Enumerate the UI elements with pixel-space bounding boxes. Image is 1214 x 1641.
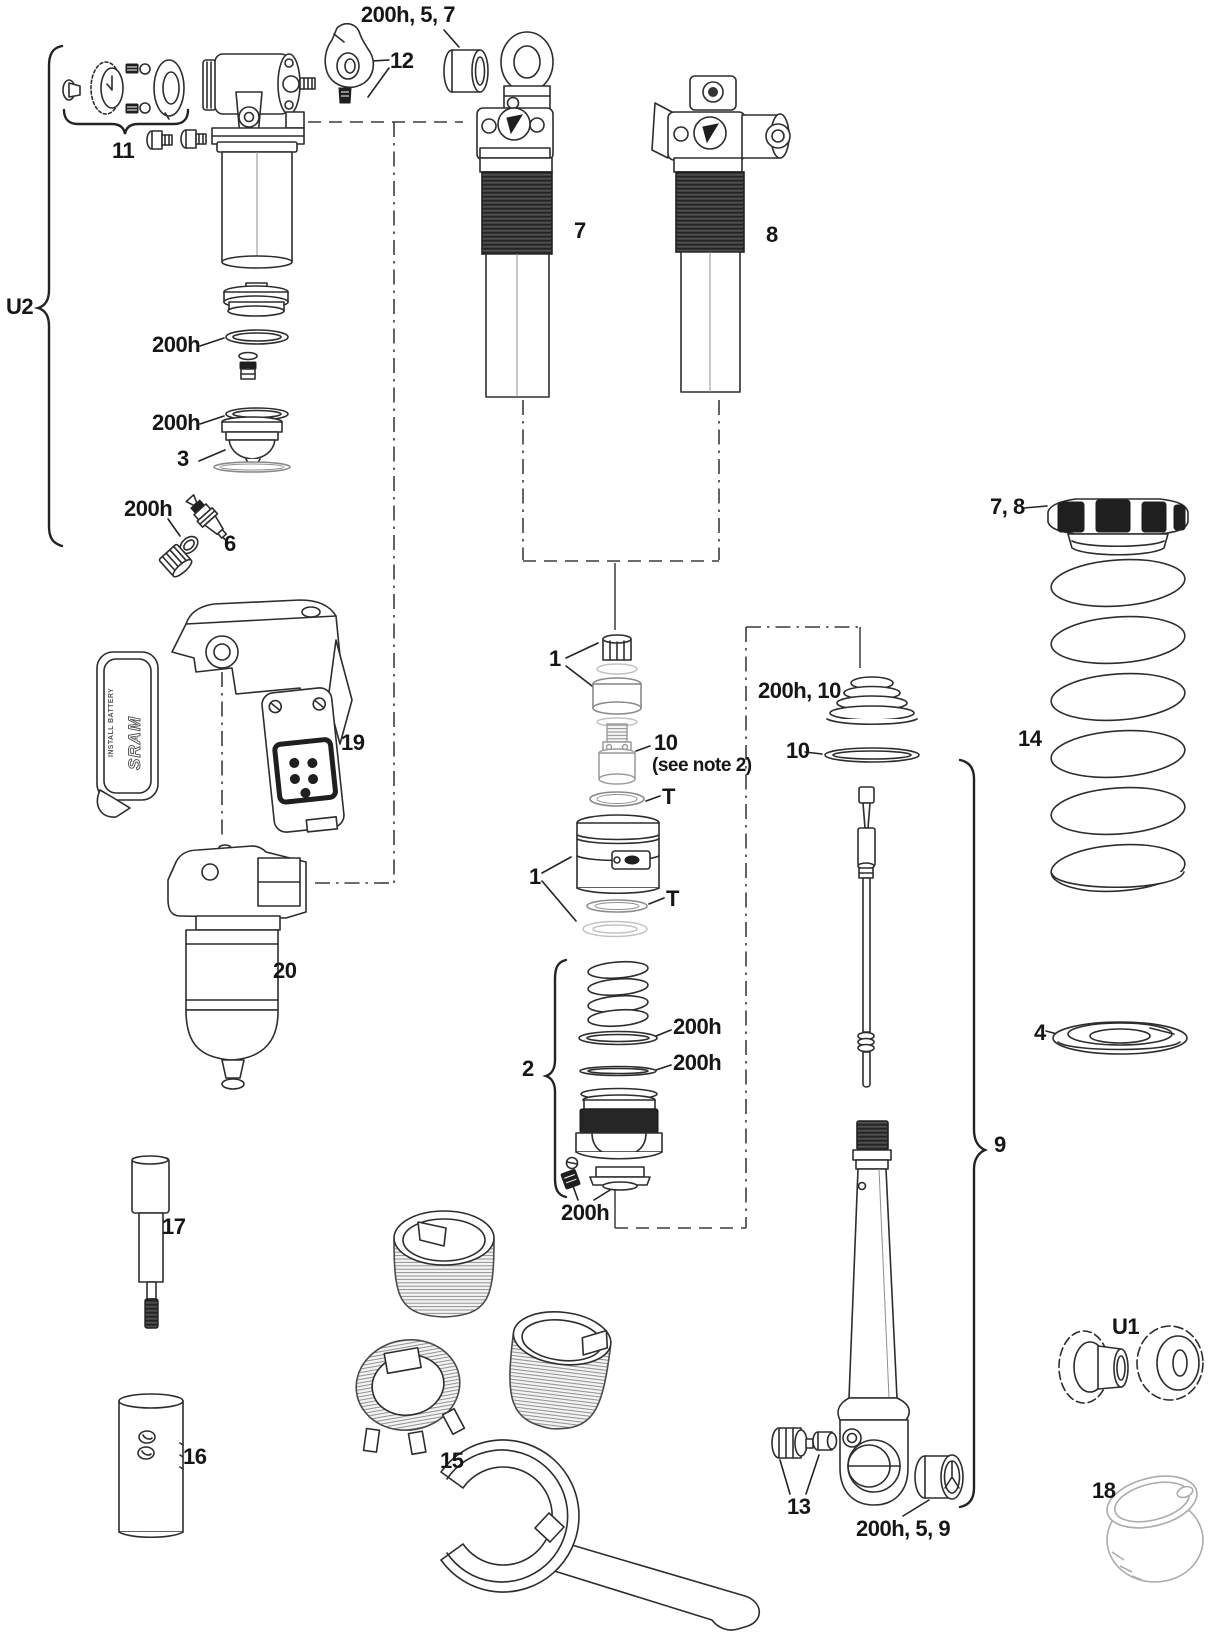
callout-oring-a: 200h: [152, 334, 200, 356]
callout-seat-4: 4: [1034, 1022, 1046, 1044]
part-air-piston-head: [224, 283, 288, 316]
part-damper-piston: [576, 1089, 662, 1159]
part-glide-ring-a: [579, 1032, 657, 1045]
callout-remote-19: 19: [341, 732, 364, 754]
part-bottom-cap: [590, 1167, 650, 1190]
part-knob-kit-11: [63, 60, 184, 119]
callout-lever-12: 12: [390, 50, 413, 72]
part-piston-ball: [567, 1158, 578, 1169]
part-u1-knob-left: [1059, 1331, 1128, 1403]
callout-bottom-cap: 200h: [561, 1202, 609, 1224]
part-negative-spring: [588, 960, 649, 1028]
part-thin-washer: [214, 462, 290, 472]
part-lever-12: [325, 24, 373, 103]
brand-logo-text: SRAM: [125, 716, 144, 770]
callout-motor-20: 20: [273, 960, 296, 982]
callout-bushing-lower: 200h, 5, 9: [856, 1518, 950, 1540]
part-damper-shaft-9: [838, 1121, 909, 1505]
part-body-sleeve-a: [394, 1211, 494, 1317]
callout-stack-1: 1: [549, 648, 561, 670]
callout-u2-group: U2: [6, 296, 33, 318]
part-coil-spring-14: [1050, 555, 1187, 895]
callout-glide-b: 200h: [673, 1052, 721, 1074]
part-shock-body-7: [477, 32, 553, 397]
part-rebound-needle: [858, 787, 875, 1087]
callout-nuts-13: 13: [787, 1496, 810, 1518]
part-spring-seat-4: [1053, 1022, 1187, 1054]
part-piston-set-screw: [561, 1169, 581, 1189]
callout-u1-group: U1: [1112, 1316, 1139, 1338]
callout-t-upper: T: [662, 786, 675, 808]
brace-u2: [38, 46, 62, 546]
part-battery-cover: INSTALL BATTERY SRAM: [97, 652, 158, 817]
callout-tool-16: 16: [183, 1446, 206, 1468]
callout-glide-a: 200h: [673, 1016, 721, 1038]
callout-piston-10: 10: [654, 732, 677, 754]
part-stack-top-nut: [593, 635, 641, 726]
part-remote-shock-unit: [203, 54, 315, 268]
callout-note-2: (see note 2): [652, 756, 752, 775]
part-shaft-nuts-13: [772, 1428, 837, 1458]
part-floating-piston-10: [599, 724, 635, 784]
callout-valve-core-6: 6: [224, 533, 236, 555]
callout-bushing-top: 200h, 5, 7: [355, 4, 455, 26]
callout-knob-kit-11: 11: [112, 140, 134, 162]
part-eyelet-bushing-lower: [915, 1455, 963, 1499]
callout-t-lower: T: [666, 888, 679, 910]
callout-group-2: 2: [522, 1058, 534, 1080]
brace-2: [546, 960, 566, 1197]
callout-oring-b: 200h: [152, 412, 200, 434]
part-preload-collar: [1048, 499, 1188, 555]
battery-cover-text: INSTALL BATTERY: [108, 688, 115, 757]
part-wiper-ring-10: [825, 748, 919, 762]
callout-aircan-1: 1: [529, 866, 541, 888]
part-shaft-clamp-17: [132, 1156, 169, 1328]
part-storage-cup-18: [1102, 1468, 1203, 1582]
callout-wiper-200h-10: 200h, 10: [758, 680, 841, 702]
callout-collar-7-8: 7, 8: [990, 496, 1025, 518]
part-u1-knob-right: [1137, 1326, 1203, 1400]
part-sleeve-tool-16: [119, 1394, 183, 1537]
callout-sleeves-15: 15: [440, 1450, 463, 1472]
callout-spring-14: 14: [1018, 728, 1041, 750]
part-air-can-1: [577, 815, 659, 937]
parts-diagram: INSTALL BATTERY SRAM: [0, 0, 1214, 1641]
part-spanner-wrench-15: [441, 1440, 759, 1630]
callout-shock-8: 8: [766, 224, 778, 246]
callout-wiper-ring-10: 10: [786, 740, 809, 762]
part-oring-200h-a: [226, 330, 288, 344]
callout-shock-7: 7: [574, 220, 586, 242]
part-glide-ring-b: [580, 1067, 656, 1076]
part-t-ring-upper: [590, 792, 644, 806]
part-body-sleeve-b: [346, 1332, 471, 1463]
callout-shaft-9: 9: [994, 1134, 1006, 1156]
part-eyelet-bushing-top: [444, 50, 488, 92]
part-seal-head-3: [222, 417, 282, 465]
callout-cup-18: 18: [1092, 1480, 1115, 1502]
callout-seal-head-3: 3: [177, 448, 189, 470]
brace-9: [960, 760, 985, 1507]
part-mount-bolts: [147, 130, 206, 149]
part-remote-unit-19: [172, 600, 352, 835]
part-small-retainer: [239, 353, 257, 380]
callout-valve-oring: 200h: [124, 498, 172, 520]
callout-tool-17: 17: [162, 1216, 185, 1238]
part-body-sleeve-c: [502, 1307, 614, 1435]
diagram-line-art: INSTALL BATTERY SRAM: [0, 0, 1214, 1641]
